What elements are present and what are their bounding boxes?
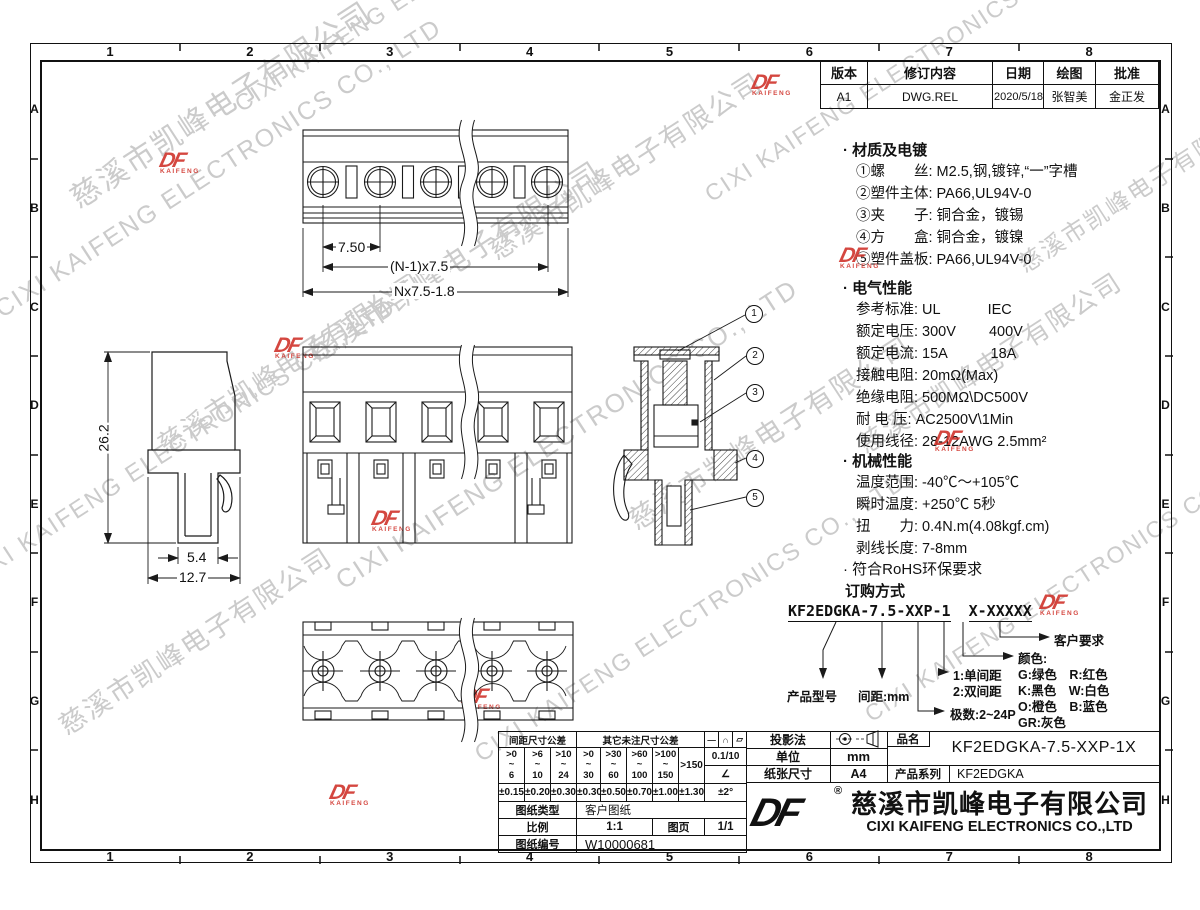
tol-header-pitch: 间距尺寸公差 [499,732,577,748]
front-view [303,345,572,543]
tol-angle-value: ±2° [705,784,747,802]
rev-version: A1 [821,85,868,109]
callout-3: 3 [746,384,764,402]
flatness-icon: ▱ [732,732,746,747]
tol-gradient: 0.1/10∠ [705,748,747,784]
tol-range: >10~24 [551,748,577,784]
tol-value: ±0.15 [499,784,525,802]
rev-header-version: 版本 [821,61,868,85]
series-value: KF2EDGKA [949,765,1167,782]
callout-4: 4 [746,450,764,468]
series-label: 产品系列 [887,765,950,782]
drawing-type-label: 图纸类型 [499,802,577,819]
angle-icon: ∠ [705,766,746,783]
rev-drawn: 张智美 [1044,85,1096,109]
unit-value: mm [830,748,887,765]
dim-span: (N-1)x7.5 [388,258,450,274]
tol-value: ±1.30 [679,784,705,802]
revision-table: 版本 修订内容 日期 绘图 批准 A1 DWG.REL 2020/5/18 张智… [820,60,1159,109]
side-view [148,352,240,543]
part-name-label: 品名 [887,731,930,747]
straightness-icon: — [705,732,718,747]
rev-header-drawn: 绘图 [1044,61,1096,85]
company-name-en: CIXI KAIFENG ELECTRONICS CO.,LTD [842,819,1157,835]
top-view [303,120,568,246]
ordering-arrows [823,622,1049,711]
part-name-value: KF2EDGKA-7.5-XXP-1X [929,731,1159,765]
divider [746,782,1159,783]
wire-entry-windows [310,402,564,442]
dim-height: 26.2 [96,422,112,453]
rev-content: DWG.REL [868,85,993,109]
tol-value: ±0.30 [577,784,601,802]
paper-label: 纸张尺寸 [746,765,830,782]
tol-symbols: —∩▱ [705,732,747,748]
tol-value: ±0.50 [601,784,627,802]
dim-leg: 5.4 [185,549,208,565]
tol-value: ±0.70 [627,784,653,802]
table-row: A1 DWG.REL 2020/5/18 张智美 金正发 [821,85,1159,109]
scale-value: 1:1 [577,819,653,836]
page-label: 图页 [653,819,705,836]
drawing-type-value: 客户图纸 [577,802,747,819]
callout-5: 5 [746,489,764,507]
tol-range-last: >150 [679,748,705,784]
tol-value: ±1.00 [653,784,679,802]
rev-header-content: 修订内容 [868,61,993,85]
side-view-dimensions [104,352,240,584]
projection-label: 投影法 [746,731,830,748]
callout-1: 1 [745,305,763,323]
tol-range: >30~60 [601,748,627,784]
registered-mark-icon: ® [834,785,842,797]
tolerance-table: 间距尺寸公差 其它未注尺寸公差 —∩▱ >0~6 >6~10 >10~24 >0… [498,731,747,853]
unit-label: 单位 [746,748,830,765]
dim-width: 12.7 [177,569,208,585]
bottom-view [303,618,573,742]
tol-value: ±0.30 [551,784,577,802]
bottom-holes [303,651,567,691]
dim-pitch: 7.50 [336,239,367,255]
scale-label: 比例 [499,819,577,836]
tol-range: >60~100 [627,748,653,784]
drawing-sheet: { "bullet": "·", "grid": {"cols": ["1","… [0,0,1200,910]
solder-pins [318,460,556,478]
rev-header-date: 日期 [993,61,1044,85]
paper-value: A4 [830,765,887,782]
arc-icon: ∩ [718,732,732,747]
rev-header-approved: 批准 [1096,61,1159,85]
company-name-cn: 慈溪市凯峰电子有限公司 [842,784,1157,821]
tol-range: >0~30 [577,748,601,784]
drawing-no-value: W10000681 [577,836,747,853]
callout-2: 2 [746,347,764,365]
tol-range: >6~10 [525,748,551,784]
tol-range: >0~6 [499,748,525,784]
page-value: 1/1 [705,819,747,836]
tol-header-other: 其它未注尺寸公差 [577,732,705,748]
dim-total: Nx7.5-1.8 [392,283,457,299]
drawing-no-label: 图纸编号 [499,836,577,853]
tol-value: ±0.20 [525,784,551,802]
tol-range: >100~150 [653,748,679,784]
company-logo: DF [746,791,803,836]
rev-approved: 金正发 [1096,85,1159,109]
rev-date: 2020/5/18 [993,85,1044,109]
title-block: 投影法 单位 mm 纸张尺寸 A4 品名 KF2EDGKA-7.5-XXP-1X… [746,731,1159,849]
